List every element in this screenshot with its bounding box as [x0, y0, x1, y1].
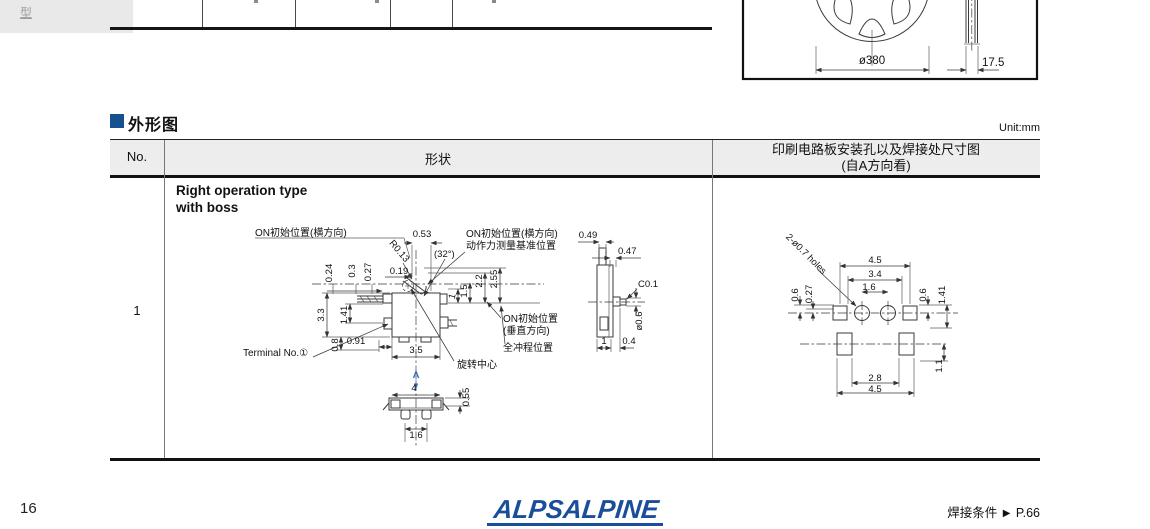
clipped-text-fragment: [375, 0, 379, 3]
view-a-marker: A: [413, 370, 420, 381]
dim-1-5: 1.5: [459, 284, 470, 297]
pcb-dim-4-5-bottom: 4.5: [868, 384, 881, 395]
alps-alpine-logo-text: ALPSALPINE: [492, 496, 659, 522]
pcb-dim-2-8: 2.8: [868, 373, 881, 384]
reel-diameter-label: ø380: [859, 55, 885, 67]
dim-1-41: 1.41: [339, 306, 350, 325]
dim-3-5: 3.5: [409, 345, 422, 356]
header-pcb-line2: (自A方向看): [712, 158, 1040, 174]
pcb-dim-1-1: 1.1: [934, 359, 945, 372]
upper-table-divider: [452, 0, 453, 27]
pcb-dim-0-6-right: 0.6: [918, 288, 929, 301]
pcb-dim-4-5-top: 4.5: [868, 255, 881, 266]
pcb-dim-0-27: 0.27: [804, 285, 815, 304]
unit-label: Unit:mm: [999, 122, 1040, 134]
dim-on-initial-horizontal-ref-2: 动作力测量基准位置: [466, 239, 556, 252]
dim-on-initial-horizontal: ON初始位置(横方向): [255, 226, 347, 239]
pcb-dim-1-6: 1.6: [862, 282, 875, 293]
rotation-center-label: 旋转中心: [457, 358, 497, 371]
dim-0-3: 0.3: [347, 264, 358, 277]
section-bullet-square: [110, 114, 124, 128]
dim-c0-1: C0.1: [638, 279, 658, 290]
dim-2-2: 2.2: [474, 274, 485, 287]
full-stroke-label: 全冲程位置: [503, 341, 553, 354]
upper-table-bottom-border: [110, 27, 712, 30]
dim-on-initial-vertical-2: (垂直方向): [503, 324, 550, 337]
dim-0-91: 0.91: [347, 336, 366, 347]
dim-0-4: 0.4: [622, 336, 635, 347]
dim-1: 1: [447, 292, 459, 300]
dim-4: 4: [411, 383, 416, 394]
switch-bottom-view: [383, 380, 470, 442]
dim-1b: 1: [601, 336, 606, 347]
shape-drawing: ON初始位置(横方向) 0.53 R0.13 (32°) ON初始位置(横方向)…: [164, 175, 712, 460]
page-number: 16: [20, 500, 37, 517]
dim-1-6: 1.6: [409, 430, 422, 441]
dim-0-47: 0.47: [618, 246, 637, 257]
section-title: 外形图: [128, 111, 179, 135]
soldering-conditions-link[interactable]: 焊接条件 ▶ P.66: [947, 502, 1040, 521]
pcb-dim-3-4: 3.4: [868, 269, 881, 280]
upper-table-divider: [202, 0, 203, 27]
dim-0-27: 0.27: [363, 263, 374, 282]
soldering-conditions-label: 焊接条件: [947, 506, 997, 520]
arrow-right-icon: ▶: [1001, 508, 1013, 519]
dim-0-55: 0.55: [461, 388, 472, 407]
soldering-conditions-page-ref: P.66: [1016, 506, 1040, 520]
dim-on-initial-horizontal-ref-1: ON初始位置(横方向): [466, 227, 558, 240]
dim-dia-0-6: ø0.6: [634, 311, 645, 330]
dim-0-49: 0.49: [579, 230, 598, 241]
pcb-dim-0-6-left: 0.6: [790, 288, 801, 301]
clipped-text-fragment: [254, 0, 258, 3]
reel-thickness-label: 17.5: [982, 57, 1004, 69]
dim-0-53: 0.53: [413, 229, 432, 240]
pcb-layout-drawing: 2-ø0.7 holes 4.5 3.4 1.6 0.6 0.27 0.6 1.…: [712, 175, 1040, 460]
dim-3-3: 3.3: [316, 308, 327, 321]
upper-table-divider: [295, 0, 296, 27]
header-pcb-line1: 印刷电路板安装孔以及焊接处尺寸图: [712, 142, 1040, 158]
side-tab-label: 型: [20, 4, 32, 21]
header-pcb: 印刷电路板安装孔以及焊接处尺寸图 (自A方向看): [712, 142, 1040, 174]
dim-0-24: 0.24: [324, 264, 335, 283]
pcb-dim-1-41: 1.41: [937, 286, 948, 305]
row-number: 1: [110, 303, 164, 318]
upper-table-divider: [390, 0, 391, 27]
dim-0-8: 0.8: [330, 338, 341, 351]
reel-packaging-drawing: ø380 17.5: [737, 0, 1040, 85]
pcb-holes-label: 2-ø0.7 holes: [783, 232, 828, 277]
dim-2-55: 2.55: [489, 270, 500, 289]
alps-alpine-logo: ALPSALPINE: [487, 496, 665, 526]
header-shape: 形状: [164, 149, 712, 168]
dim-angle-32: (32°): [434, 249, 455, 260]
header-no: No.: [110, 149, 164, 164]
dim-on-initial-vertical-1: ON初始位置: [503, 312, 558, 325]
dim-0-19: 0.19: [390, 266, 409, 277]
clipped-text-fragment: [492, 0, 496, 3]
dim-r0-13: R0.13: [387, 238, 412, 264]
catalog-page: 型: [0, 0, 1150, 529]
terminal-no1-label: Terminal No.①: [243, 348, 308, 359]
